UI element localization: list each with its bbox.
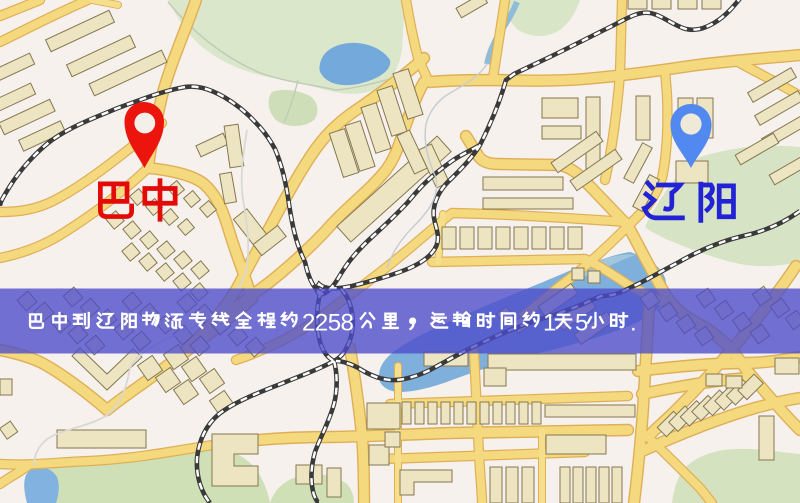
svg-text:2258: 2258 (302, 310, 354, 337)
svg-text:1: 1 (543, 310, 556, 337)
svg-text:.: . (630, 310, 637, 337)
svg-text:5: 5 (575, 310, 588, 337)
